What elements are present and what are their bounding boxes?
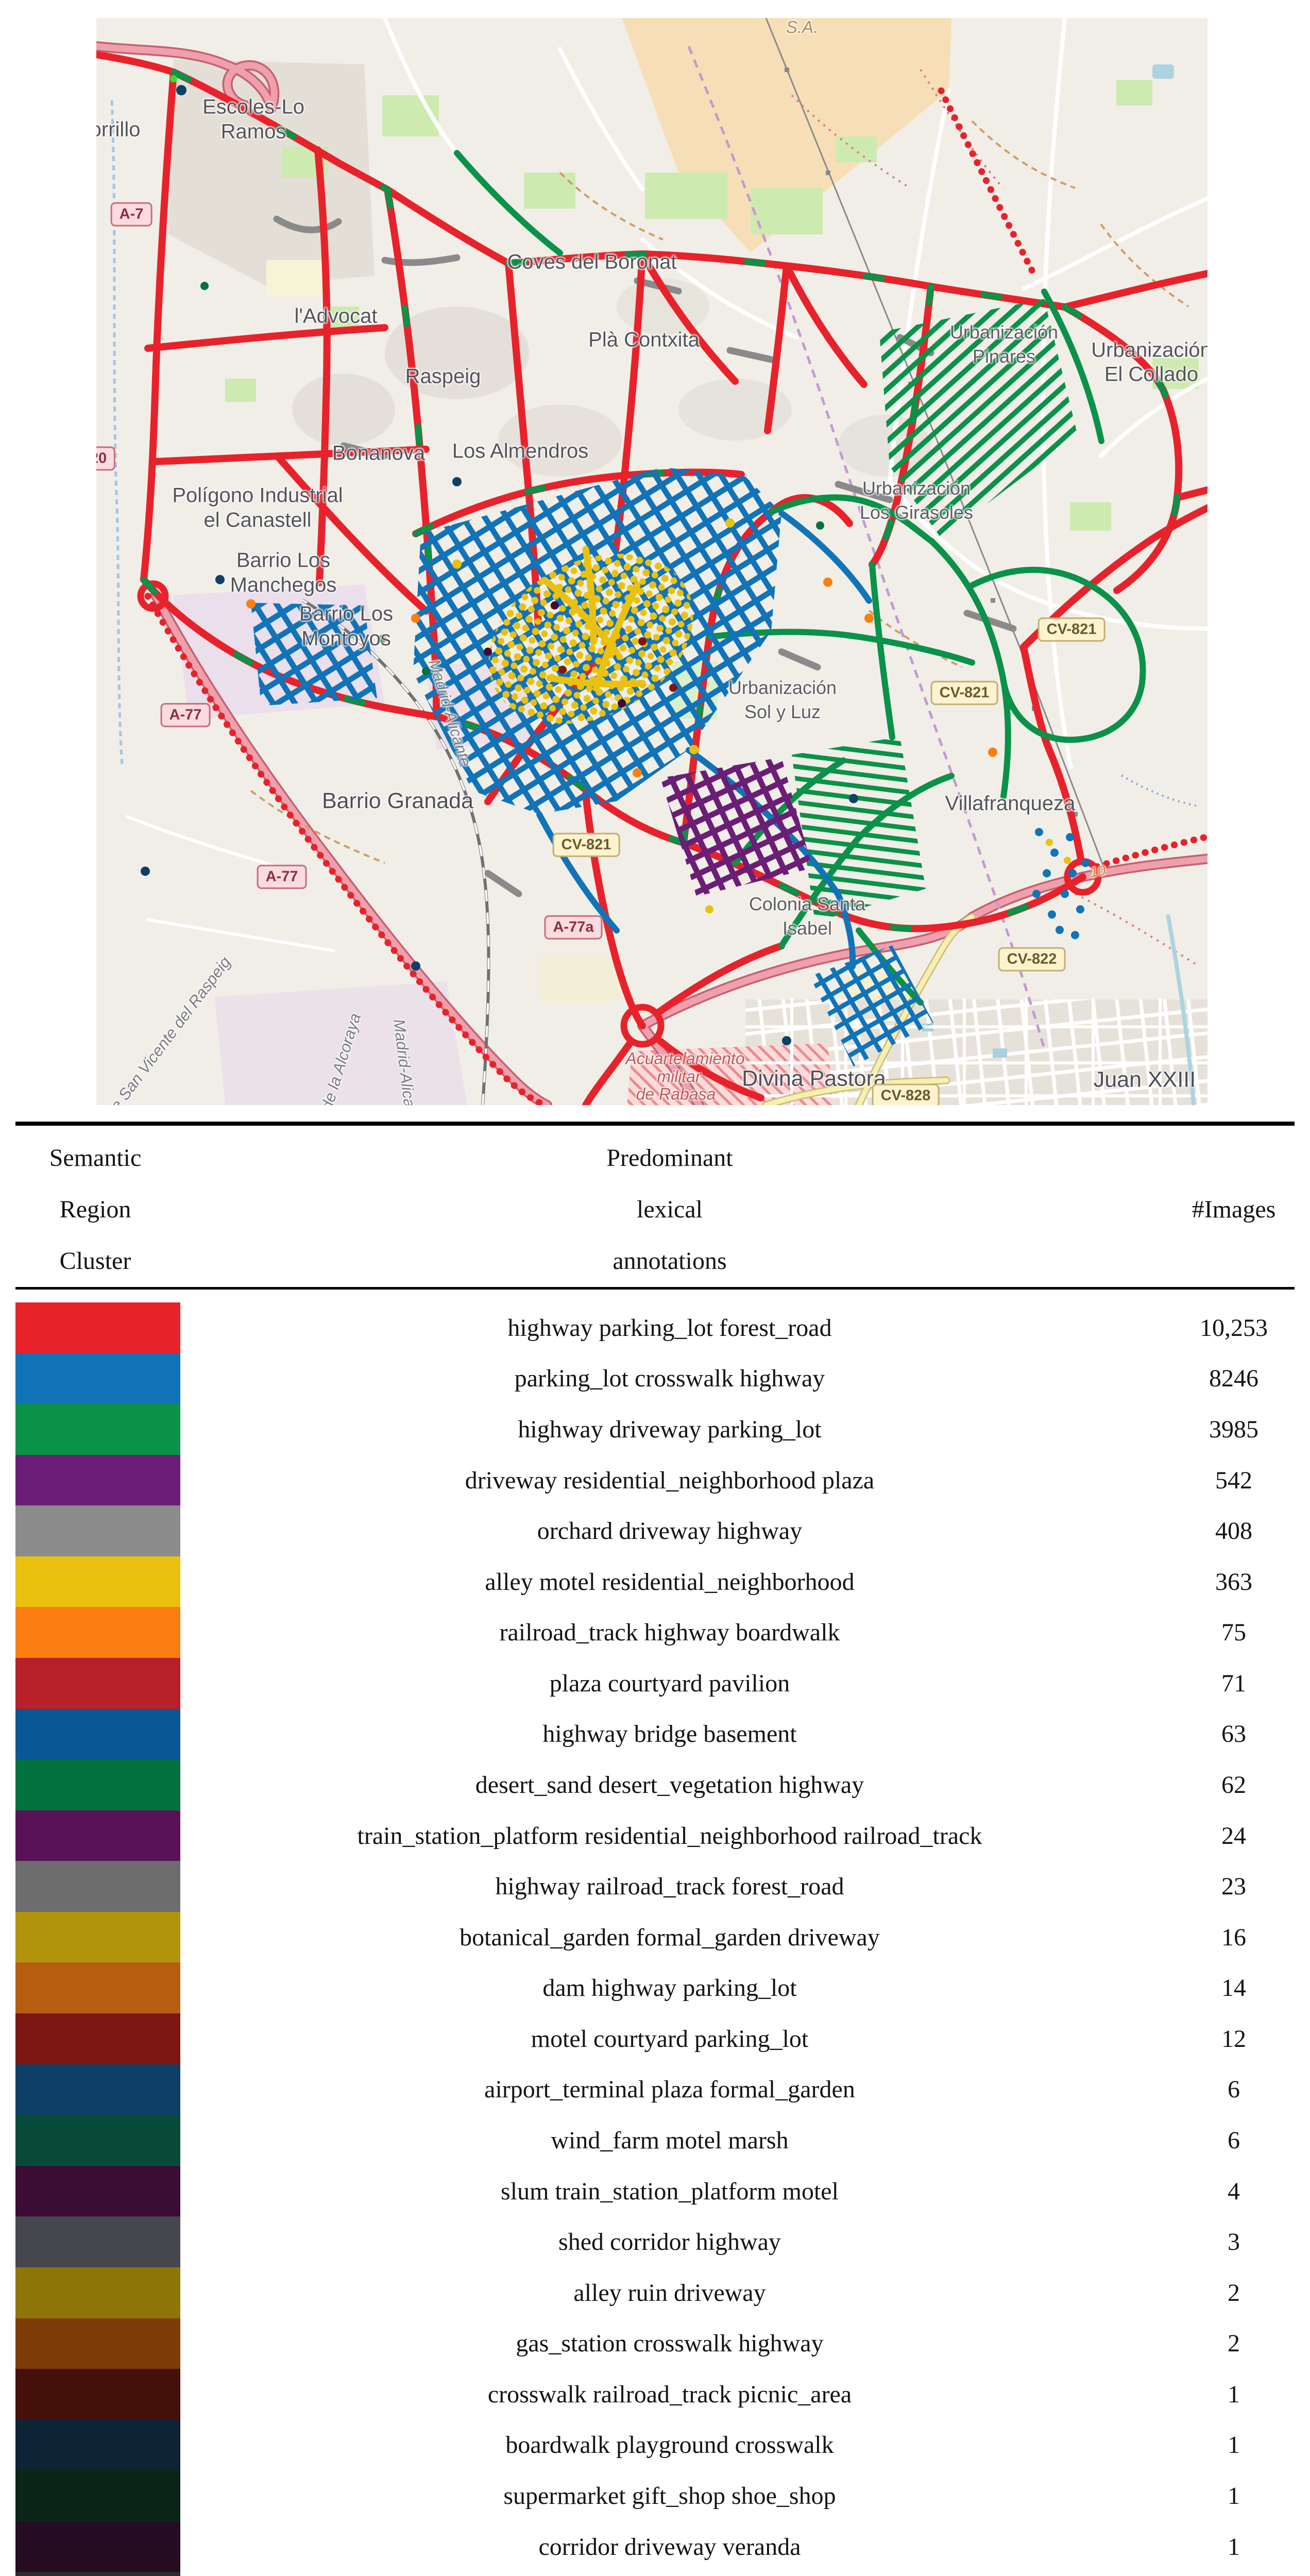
map-place-label: Ramos: [221, 121, 286, 144]
header-predominant: Predominant: [206, 1132, 1133, 1183]
cluster-color-swatch: [15, 1607, 180, 1658]
table-row: airport_terminal plaza formal_garden6: [0, 2064, 1310, 2115]
image-count-cell: 2: [1175, 2267, 1293, 2318]
annotation-cell: alley ruin driveway: [206, 2267, 1133, 2318]
cluster-color-swatch: [15, 1912, 180, 1963]
cluster-color-swatch: [15, 2470, 180, 2521]
figure-page: Escoles-Lo Ramos torrillo Coves del Boro…: [0, 0, 1310, 2576]
annotation-cell: highway driveway parking_lot: [206, 1404, 1133, 1455]
table-row: slum train_station_platform motel4: [0, 2166, 1310, 2217]
annotation-cell: phone_booth lobby parking_lot: [206, 2572, 1133, 2576]
table-row: corridor driveway veranda1: [0, 2521, 1310, 2572]
map-place-label: Manchegos: [230, 574, 337, 597]
annotation-cell: driveway residential_neighborhood plaza: [206, 1455, 1133, 1506]
image-count-cell: 62: [1175, 1759, 1293, 1810]
table-rule-top: [15, 1122, 1295, 1126]
map-place-label: Barrio Los: [236, 549, 330, 572]
road-shield: CV-821: [1038, 618, 1105, 642]
cluster-color-swatch: [15, 2369, 180, 2420]
map-place-label: Barrio Los: [299, 603, 393, 626]
image-count-cell: 24: [1175, 1810, 1293, 1861]
table-row: crosswalk railroad_track picnic_area1: [0, 2369, 1310, 2420]
annotation-cell: orchard driveway highway: [206, 1505, 1133, 1556]
table-row: alley motel residential_neighborhood363: [0, 1556, 1310, 1607]
map-military-label: militar: [657, 1067, 701, 1087]
road-shield: A-77: [161, 703, 211, 727]
cluster-color-swatch: [15, 1404, 180, 1455]
map-place-label: Coves del Boronat: [507, 251, 676, 274]
cluster-color-swatch: [15, 2166, 180, 2217]
table-row: highway railroad_track forest_road23: [0, 1861, 1310, 1912]
cluster-color-swatch: [15, 1759, 180, 1810]
cluster-color-swatch: [15, 1302, 180, 1353]
table-row: driveway residential_neighborhood plaza5…: [0, 1455, 1310, 1506]
cluster-color-swatch: [15, 1658, 180, 1709]
map-area-label: S.A.: [786, 18, 818, 37]
map-place-label: l'Advocat: [294, 305, 377, 328]
cluster-color-swatch: [15, 2267, 180, 2318]
cluster-color-swatch: [15, 2318, 180, 2369]
image-count-cell: 1: [1175, 2420, 1293, 2471]
cluster-color-swatch: [15, 2572, 180, 2576]
image-count-cell: 16: [1175, 1912, 1293, 1963]
image-count-cell: 6: [1175, 2115, 1293, 2166]
map-military-label: de Rabasa: [636, 1085, 716, 1104]
cluster-color-swatch: [15, 1962, 180, 2013]
road-shield: CV-822: [998, 947, 1066, 972]
image-count-cell: 23: [1175, 1861, 1293, 1912]
table-row: desert_sand desert_vegetation highway62: [0, 1759, 1310, 1810]
map-place-label: Polígono Industrial: [172, 484, 343, 507]
cluster-color-swatch: [15, 1810, 180, 1861]
image-count-cell: 1: [1175, 2369, 1293, 2420]
header-images: #Images: [1175, 1183, 1293, 1235]
annotation-cell: botanical_garden formal_garden driveway: [206, 1912, 1133, 1963]
map-place-label: Los Girasoles: [860, 502, 973, 523]
road-shield: A-77: [257, 865, 307, 889]
annotation-cell: plaza courtyard pavilion: [206, 1658, 1133, 1709]
cluster-color-swatch: [15, 2064, 180, 2115]
annotation-cell: gas_station crosswalk highway: [206, 2318, 1133, 2369]
map-place-label: Urbanización: [862, 478, 971, 499]
cluster-color-swatch: [15, 2013, 180, 2064]
header-annotations: annotations: [206, 1235, 1133, 1286]
annotation-cell: train_station_platform residential_neigh…: [206, 1810, 1133, 1861]
image-count-cell: 2: [1175, 2318, 1293, 2369]
table-row: phone_booth lobby parking_lot1: [0, 2572, 1310, 2576]
cluster-color-swatch: [15, 2420, 180, 2471]
map-place-label: Los Almendros: [452, 440, 589, 463]
table-row: railroad_track highway boardwalk75: [0, 1607, 1310, 1658]
cluster-color-swatch: [15, 1455, 180, 1506]
map-exit-label: 10: [1089, 863, 1107, 881]
image-count-cell: 4: [1175, 2166, 1293, 2217]
table-row: botanical_garden formal_garden driveway1…: [0, 1912, 1310, 1963]
image-count-cell: 14: [1175, 1962, 1293, 2013]
table-row: orchard driveway highway408: [0, 1505, 1310, 1556]
semantic-region-map: Escoles-Lo Ramos torrillo Coves del Boro…: [96, 18, 1207, 1105]
image-count-cell: 8246: [1175, 1353, 1293, 1404]
image-count-cell: 1: [1175, 2470, 1293, 2521]
image-count-cell: 71: [1175, 1658, 1293, 1709]
cluster-color-swatch: [15, 1353, 180, 1404]
image-count-cell: 408: [1175, 1505, 1293, 1556]
map-place-label: Sol y Luz: [744, 701, 821, 723]
table-row: alley ruin driveway2: [0, 2267, 1310, 2318]
annotation-cell: supermarket gift_shop shoe_shop: [206, 2470, 1133, 2521]
annotation-cell: highway bridge basement: [206, 1709, 1133, 1760]
annotation-cell: highway railroad_track forest_road: [206, 1861, 1133, 1912]
road-shield: CV-821: [553, 833, 620, 857]
annotation-cell: highway parking_lot forest_road: [206, 1302, 1133, 1353]
annotation-cell: corridor driveway veranda: [206, 2521, 1133, 2572]
map-place-label: Barrio Granada: [322, 789, 473, 814]
table-row: wind_farm motel marsh6: [0, 2115, 1310, 2166]
table-row: boardwalk playground crosswalk1: [0, 2420, 1310, 2471]
image-count-cell: 542: [1175, 1455, 1293, 1506]
road-shield: A-7: [111, 202, 152, 227]
map-place-label: el Canastell: [203, 509, 311, 532]
annotation-cell: motel courtyard parking_lot: [206, 2013, 1133, 2064]
table-row: supermarket gift_shop shoe_shop1: [0, 2470, 1310, 2521]
table-row: highway parking_lot forest_road10,253: [0, 1302, 1310, 1353]
image-count-cell: 10,253: [1175, 1302, 1293, 1353]
table-row: highway driveway parking_lot3985: [0, 1404, 1310, 1455]
map-place-label: Bonanova: [332, 442, 425, 465]
annotation-cell: shed corridor highway: [206, 2216, 1133, 2267]
road-shield: 20: [96, 447, 115, 471]
annotation-cell: airport_terminal plaza formal_garden: [206, 2064, 1133, 2115]
table-row: motel courtyard parking_lot12: [0, 2013, 1310, 2064]
image-count-cell: 3985: [1175, 1404, 1293, 1455]
table-row: train_station_platform residential_neigh…: [0, 1810, 1310, 1861]
table-row: dam highway parking_lot14: [0, 1962, 1310, 2013]
table-row: highway bridge basement63: [0, 1709, 1310, 1760]
road-shield: A-77a: [545, 916, 603, 940]
table-row: shed corridor highway3: [0, 2216, 1310, 2267]
annotation-cell: crosswalk railroad_track picnic_area: [206, 2369, 1133, 2420]
header-cluster: Cluster: [15, 1235, 175, 1286]
image-count-cell: 1: [1175, 2572, 1293, 2576]
image-count-cell: 12: [1175, 2013, 1293, 2064]
road-shield: CV-828: [872, 1084, 940, 1106]
cluster-color-swatch: [15, 1861, 180, 1912]
table-body: highway parking_lot forest_road10,253 pa…: [0, 1302, 1310, 2576]
map-place-label: Juan XXIII: [1094, 1067, 1196, 1093]
map-place-label: Escoles-Lo: [202, 96, 304, 119]
annotation-cell: parking_lot crosswalk highway: [206, 1353, 1133, 1404]
annotation-cell: slum train_station_platform motel: [206, 2166, 1133, 2217]
map-place-label: Urbanización: [1091, 339, 1207, 362]
annotation-cell: wind_farm motel marsh: [206, 2115, 1133, 2166]
map-place-label: Raspeig: [405, 365, 481, 388]
table-row: gas_station crosswalk highway2: [0, 2318, 1310, 2369]
table-row: plaza courtyard pavilion71: [0, 1658, 1310, 1709]
map-place-label: Colonia Santa: [749, 893, 865, 915]
image-count-cell: 363: [1175, 1556, 1293, 1607]
map-place-label: Montoyos: [301, 628, 390, 651]
image-count-cell: 75: [1175, 1607, 1293, 1658]
image-count-cell: 6: [1175, 2064, 1293, 2115]
cluster-color-swatch: [15, 2115, 180, 2166]
image-count-cell: 1: [1175, 2521, 1293, 2572]
lime-dot: [170, 75, 177, 82]
map-place-label: Isabel: [782, 918, 832, 939]
map-place-label: Urbanización: [950, 321, 1058, 343]
map-place-label: Urbanización: [728, 677, 837, 699]
map-place-label: Divina Pastora: [742, 1066, 886, 1092]
annotation-cell: alley motel residential_neighborhood: [206, 1556, 1133, 1607]
cluster-color-swatch: [15, 1505, 180, 1556]
annotation-cell: dam highway parking_lot: [206, 1962, 1133, 2013]
road-shield: CV-821: [931, 681, 998, 705]
image-count-cell: 63: [1175, 1709, 1293, 1760]
image-count-cell: 3: [1175, 2216, 1293, 2267]
header-semantic: Semantic: [15, 1132, 175, 1183]
map-place-label: El Collado: [1104, 363, 1198, 386]
header-lexical: lexical: [206, 1183, 1133, 1235]
cluster-color-swatch: [15, 2216, 180, 2267]
table-row: parking_lot crosswalk highway8246: [0, 1353, 1310, 1404]
map-place-label: Villafranqueza: [945, 792, 1076, 816]
map-place-label: Plà Contxita: [588, 329, 700, 352]
table-rule-mid: [15, 1287, 1295, 1290]
annotation-cell: desert_sand desert_vegetation highway: [206, 1759, 1133, 1810]
map-military-label: Acuartelamiento: [625, 1049, 744, 1069]
annotation-cell: boardwalk playground crosswalk: [206, 2420, 1133, 2471]
map-place-label: Pinares: [973, 346, 1035, 367]
cluster-color-swatch: [15, 2521, 180, 2572]
map-place-label: torrillo: [96, 118, 140, 142]
header-region: Region: [15, 1183, 175, 1235]
cluster-color-swatch: [15, 1709, 180, 1760]
annotation-cell: railroad_track highway boardwalk: [206, 1607, 1133, 1658]
cluster-color-swatch: [15, 1556, 180, 1607]
